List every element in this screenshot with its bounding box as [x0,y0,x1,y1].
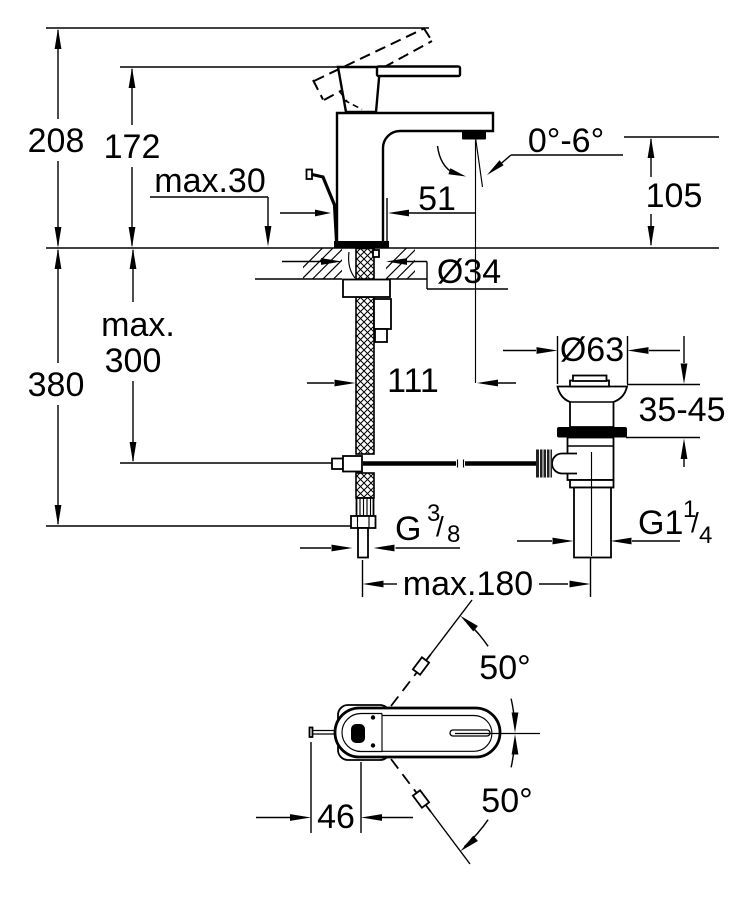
plug-cap [573,376,607,382]
label-hole-diameter: Ø34 [437,253,501,291]
label-spout-height: 105 [646,177,703,215]
lever-handle [377,67,460,77]
label-supply-thread-slash: / [436,511,444,542]
water-stream-tilted [476,138,483,188]
label-rod-length: max.180 [403,565,533,603]
label-waste-thread-sub: 4 [699,522,712,549]
shank-stud [373,250,379,257]
label-spout-angle: 0°-6° [528,122,604,160]
label-supply-thread-g: G [395,510,421,548]
dim-basin-thickness: 35-45 [626,336,725,467]
label-total-depth: 380 [28,366,85,404]
waste-flange [558,387,628,428]
dim-rod-length: max.180 [363,558,591,603]
lever-housing [338,67,380,112]
label-swivel-lower: 50° [481,782,532,820]
rod-neck [552,454,577,474]
waste-tailpipe [574,488,611,558]
label-spout-offset: 51 [418,180,456,218]
dim-total-depth: 380 [28,249,85,526]
dim-lever-height: 172 [104,68,161,248]
label-deck-max: max.30 [154,162,266,200]
rubber-gasket [557,427,627,438]
dim-hose-length: max. 300 [101,249,175,463]
reference-lines [46,28,719,526]
dim-spout-offset: 51 [387,180,475,247]
label-flange-diameter: Ø63 [560,331,624,369]
dim-waste-thread: G1 1 / 4 [517,496,712,549]
label-basin-thickness: 35-45 [639,391,726,429]
label-hose-max-2: 300 [105,342,162,380]
pop-up-waste [536,376,627,558]
label-hose-max-1: max. [101,306,175,344]
lever-tip-marker-lower [413,790,429,807]
mounting-bolt [349,252,355,278]
label-waste-thread-slash: / [691,507,699,538]
aerator [462,131,486,140]
fixing-nut [343,280,390,298]
hose-guide-step [375,329,387,342]
lever-tip-marker-upper [413,657,429,674]
rod-clamp-large [343,456,362,472]
dim-deck-thickness: max.30 [150,162,331,247]
label-swivel-upper: 50° [479,649,530,687]
hose-nut [351,516,376,528]
pop-up-linkage [120,456,537,472]
thread-tube [358,528,368,558]
label-waste-offset: 111 [387,362,439,400]
drawing-canvas: 208 172 380 max. 300 max.30 [0,0,751,900]
base-plate [334,241,389,249]
logo-recess [351,724,365,743]
label-supply-thread-sub: 8 [447,521,460,548]
hose-guide-block [374,299,391,329]
technical-drawing: 208 172 380 max. 300 max.30 [0,0,751,900]
pop-up-knob-front [307,170,313,180]
rod-clamp-small [332,459,343,470]
label-waste-thread-g: G1 [638,504,683,542]
dim-total-height: 208 [28,29,85,248]
hose-end-fitting [351,498,376,558]
rod-end-top-view [310,728,313,738]
faucet-front-view [307,29,494,384]
label-rod-offset: 46 [317,798,355,836]
label-lever-height: 172 [104,128,161,166]
label-total-height: 208 [28,122,85,160]
dim-waste-offset: 111 [307,362,516,400]
screw-dot-top [371,715,375,719]
pop-up-rod [312,175,337,242]
screw-dot-bottom [371,743,375,747]
dim-spout-height: 105 [646,138,703,247]
